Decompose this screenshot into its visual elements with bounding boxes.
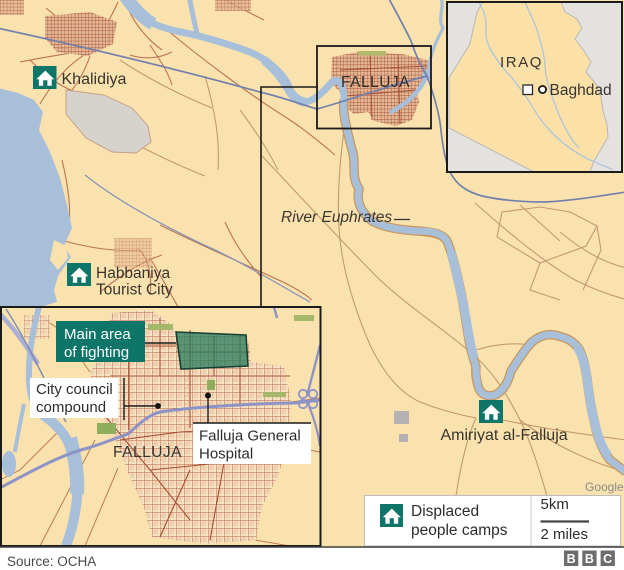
svg-text:compound: compound [36, 399, 106, 416]
svg-text:Baghdad: Baghdad [550, 82, 612, 99]
svg-text:C: C [603, 552, 612, 566]
svg-text:Source: OCHA: Source: OCHA [7, 554, 96, 569]
svg-text:Falluja General: Falluja General [199, 428, 301, 445]
svg-text:Google: Google [585, 480, 624, 494]
svg-text:River Euphrates: River Euphrates [281, 209, 392, 226]
svg-text:B: B [585, 552, 594, 566]
svg-text:2 miles: 2 miles [541, 526, 589, 543]
svg-text:B: B [567, 552, 576, 566]
svg-text:Hospital: Hospital [199, 446, 253, 463]
svg-text:Main area: Main area [64, 326, 131, 343]
svg-text:Khalidiya: Khalidiya [62, 71, 127, 88]
svg-text:City council: City council [36, 381, 113, 398]
svg-text:5km: 5km [541, 496, 569, 513]
svg-text:Habbaniya: Habbaniya [96, 265, 170, 282]
svg-text:FALLUJA: FALLUJA [113, 444, 182, 461]
svg-text:of fighting: of fighting [64, 344, 129, 361]
svg-text:IRAQ: IRAQ [500, 54, 543, 71]
svg-text:people camps: people camps [411, 522, 508, 539]
svg-text:Tourist City: Tourist City [96, 282, 173, 299]
svg-text:Amiriyat al-Falluja: Amiriyat al-Falluja [441, 427, 568, 444]
svg-text:FALLUJA: FALLUJA [341, 74, 410, 91]
svg-text:Displaced: Displaced [411, 503, 479, 520]
